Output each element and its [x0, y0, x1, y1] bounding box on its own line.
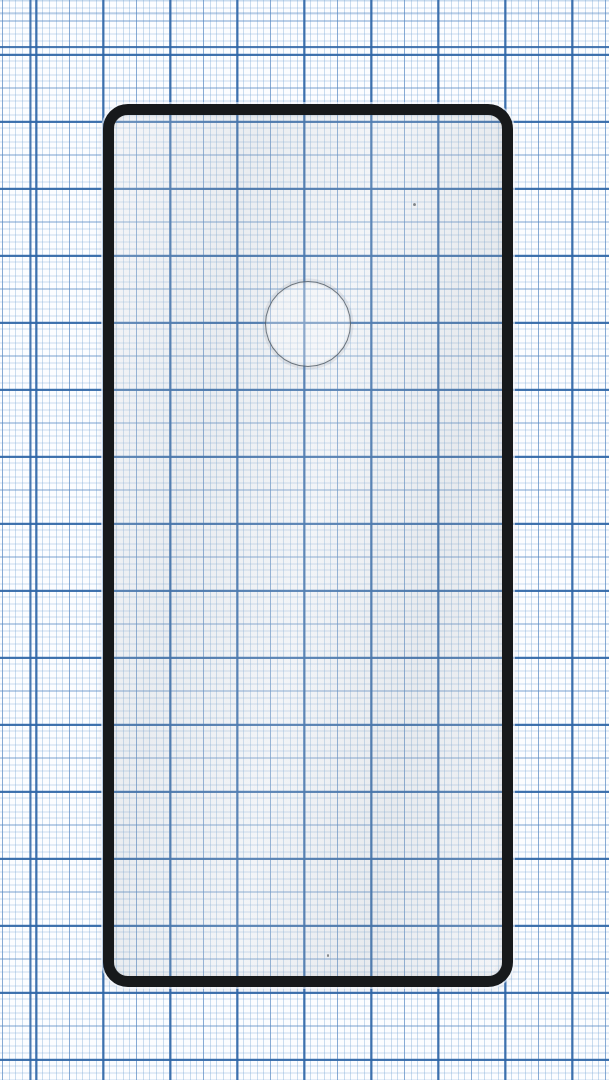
- dust-speck: [413, 203, 416, 206]
- glass-area: [114, 115, 502, 976]
- camera-cutout-circle: [265, 281, 351, 367]
- dust-speck: [327, 954, 329, 957]
- screen-protector-frame: [103, 104, 513, 987]
- product-photo: [0, 0, 609, 1080]
